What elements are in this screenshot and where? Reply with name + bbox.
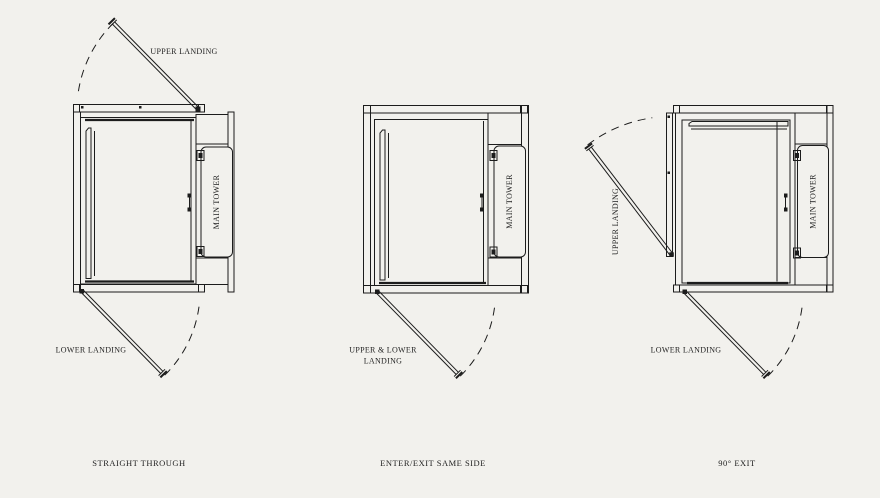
diagram-caption: STRAIGHT THROUGH <box>92 458 185 468</box>
bar-dot <box>139 106 142 109</box>
platform <box>375 120 489 286</box>
lift-configurations-drawing: MAIN TOWER UPPER LANDING LOWER LANDING S… <box>0 0 880 498</box>
door-handle-mark <box>480 194 484 198</box>
door-hinge <box>80 289 85 294</box>
tower-label: MAIN TOWER <box>212 174 221 229</box>
door-end-cap <box>109 18 115 24</box>
door-swing-arc <box>78 23 113 92</box>
bar-dot <box>81 106 84 109</box>
tower-clamp-mark <box>199 153 203 158</box>
left-wall <box>364 106 371 294</box>
upper-door-label: UPPER LANDING <box>150 47 217 56</box>
tower-label: MAIN TOWER <box>809 174 818 229</box>
door-handle-mark <box>784 194 788 198</box>
bottom-bar <box>74 285 205 293</box>
lift-unit: MAIN TOWER <box>364 106 529 294</box>
door-hinge <box>375 290 380 295</box>
door-swing-arc <box>768 304 803 376</box>
top-bar <box>674 106 834 114</box>
diagram-90-exit: MAIN TOWER UPPER LANDING LOWER LANDING 9… <box>585 106 833 469</box>
wall-dot <box>668 116 671 119</box>
top-connector <box>196 115 228 145</box>
top-connector <box>795 113 827 144</box>
door-hinge <box>196 107 201 112</box>
platform <box>81 118 197 285</box>
upper-door-label: UPPER LANDING <box>611 188 620 255</box>
tower-clamp-mark <box>492 250 496 255</box>
wall-dot <box>668 172 671 175</box>
door-swing-arc <box>165 303 200 375</box>
door-hinge <box>683 290 688 295</box>
bottom-bar <box>674 285 834 292</box>
upper-landing-door <box>585 143 674 256</box>
bottom-connector <box>795 258 827 286</box>
platform <box>682 120 790 283</box>
door-handle-mark <box>188 194 192 198</box>
lift-unit: MAIN TOWER <box>74 105 235 293</box>
left-wall <box>667 113 673 257</box>
upper-landing-door <box>109 18 201 111</box>
left-wall <box>74 112 81 292</box>
door-label-line2: LANDING <box>364 357 403 366</box>
side-rail <box>380 130 385 280</box>
top-bar <box>364 106 528 114</box>
tower-clamp-mark <box>795 251 799 256</box>
diagram-enter-exit-same-side: MAIN TOWER UPPER & LOWER LANDING ENTER/E… <box>349 106 528 469</box>
bottom-bar <box>364 286 528 294</box>
tower-clamp-mark <box>199 249 203 254</box>
door-handle-mark <box>480 208 484 212</box>
door-swing-arc <box>460 304 495 376</box>
bottom-connector <box>488 258 522 286</box>
side-rail <box>86 128 91 279</box>
bottom-connector <box>196 258 228 285</box>
lower-landing-door <box>80 289 167 377</box>
door-swing-arc <box>588 118 653 145</box>
tower-clamp-mark <box>492 153 496 158</box>
tower-clamp-mark <box>795 153 799 158</box>
diagram-caption: 90° EXIT <box>718 458 756 468</box>
door-handle-mark <box>784 208 788 212</box>
door-label-line1: UPPER & LOWER <box>349 346 417 355</box>
diagram-caption: ENTER/EXIT SAME SIDE <box>380 458 486 468</box>
tower-label: MAIN TOWER <box>505 174 514 229</box>
door-handle-mark <box>188 208 192 212</box>
diagram-straight-through: MAIN TOWER UPPER LANDING LOWER LANDING S… <box>56 18 234 468</box>
lower-door-label: LOWER LANDING <box>56 346 127 355</box>
lower-door-label: LOWER LANDING <box>651 346 722 355</box>
page: { "colors": { "background": "#f2f1ed", "… <box>0 0 880 498</box>
door-hinge <box>669 252 674 256</box>
lift-unit: MAIN TOWER <box>667 106 834 293</box>
top-rail <box>689 122 788 127</box>
top-connector <box>488 113 522 145</box>
lower-landing-door <box>683 290 770 379</box>
